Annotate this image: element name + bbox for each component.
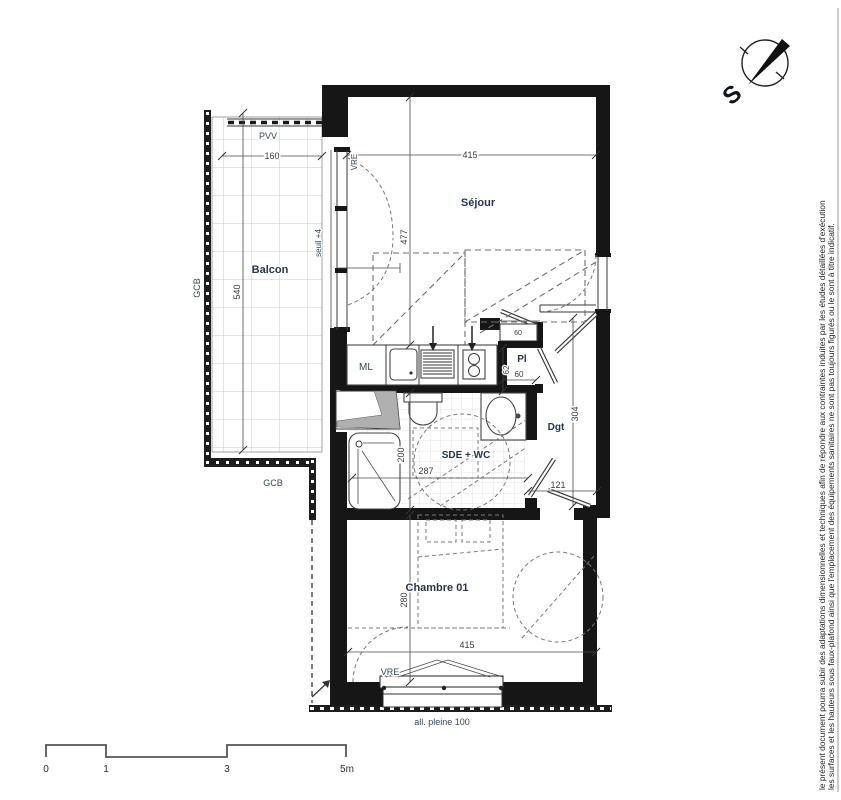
corner-arrow xyxy=(312,680,330,697)
dim-dgt-width: 121 xyxy=(550,480,565,490)
balcony-bottom-railing xyxy=(204,458,316,467)
vre-bottom-label: VRE xyxy=(381,667,400,677)
wall-sde-chambre xyxy=(332,508,540,520)
bedroom xyxy=(312,515,603,697)
scale-tick-1: 1 xyxy=(103,764,109,775)
dim-sde-width: 287 xyxy=(418,466,433,476)
dim-balcony-depth: 540 xyxy=(232,284,242,299)
wall-right-mid xyxy=(596,311,610,510)
dim-placard-width: 60 xyxy=(515,370,524,379)
disclaimer: le présent document pourra subir des ada… xyxy=(817,8,838,792)
dim-dgt-depth: 304 xyxy=(570,406,580,421)
dim-sejour-depth: 477 xyxy=(399,229,409,244)
bathroom xyxy=(336,391,527,510)
dim-chambre-width: 415 xyxy=(459,640,474,650)
ml-label: ML xyxy=(359,362,373,373)
shower xyxy=(349,433,400,509)
vre-top-label: VRE xyxy=(350,154,359,170)
scale-bar: 0 1 3 5m xyxy=(43,745,354,775)
washbasin xyxy=(481,393,526,440)
wall-top xyxy=(322,85,610,97)
dim-sejour-width: 415 xyxy=(462,150,477,160)
wall-left-thin xyxy=(330,390,336,432)
scale-tick-0: 0 xyxy=(43,764,49,775)
kitchen-sink xyxy=(390,349,417,380)
gcb-left-label: GCB xyxy=(192,278,202,298)
shelf-width-label: 60 xyxy=(514,330,522,337)
wall-left-lower xyxy=(330,432,347,708)
oven-hob xyxy=(463,350,485,379)
balcony-floor-grid xyxy=(212,117,322,452)
seuil-label: seuil +4 xyxy=(314,229,323,257)
sde-wc-label: SDE + WC xyxy=(442,450,491,461)
chambre-label: Chambre 01 xyxy=(406,582,469,594)
sejour-label: Séjour xyxy=(461,197,496,209)
disclaimer-line-2: les surfaces et les hauteurs sous faux-p… xyxy=(826,223,836,790)
sejour-window-vre xyxy=(335,150,400,330)
right-wall-opening xyxy=(539,255,607,312)
placard-door-leaf xyxy=(539,348,556,383)
wall-sde-right-upper xyxy=(525,393,537,440)
floor-plan: Balcon Séjour SDE + WC Chambre 01 Dgt Pl… xyxy=(0,0,841,800)
wall-bottom-right xyxy=(502,682,597,707)
wall-chambre-door-stub xyxy=(574,508,597,520)
wall-right-upper xyxy=(596,93,610,257)
wall-right-bedroom xyxy=(583,514,597,694)
allege-label: all. pleine 100 xyxy=(414,717,470,727)
scale-bar-profile xyxy=(46,745,346,757)
duct xyxy=(336,391,400,429)
wall-top-left-stub xyxy=(322,85,348,137)
floor-plan-page: Balcon Séjour SDE + WC Chambre 01 Dgt Pl… xyxy=(0,0,841,800)
pvv-label: PVV xyxy=(259,131,277,141)
dim-sde-depth: 200 xyxy=(396,447,406,462)
dim-placard-depth: 62 xyxy=(502,365,511,374)
placard-label: Pl xyxy=(517,354,527,365)
scale-tick-3: 3 xyxy=(224,764,230,775)
compass-south-label: S xyxy=(718,80,748,111)
balcon-label: Balcon xyxy=(252,264,289,276)
dgt-label: Dgt xyxy=(548,422,565,433)
scale-tick-5m: 5m xyxy=(340,764,354,775)
cooktop xyxy=(421,350,454,378)
wall-pi-left xyxy=(480,318,500,330)
gcb-bottom-label: GCB xyxy=(263,478,283,488)
dim-balcony-width: 160 xyxy=(264,151,279,161)
dim-chambre-depth: 280 xyxy=(399,592,409,607)
kitchen xyxy=(347,250,596,385)
wall-pi-stub xyxy=(535,384,543,393)
chambre-door-leaf xyxy=(548,490,590,506)
wall-left-upper xyxy=(330,328,347,390)
balcony xyxy=(204,110,331,703)
compass: S xyxy=(718,39,790,111)
bed-outline xyxy=(418,515,503,628)
